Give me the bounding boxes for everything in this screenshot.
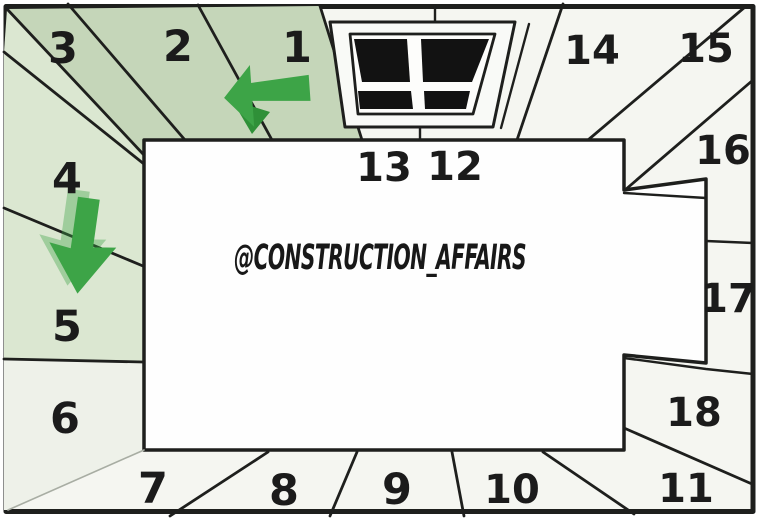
segment-label-1: 1 (282, 23, 312, 73)
segment-label-13: 13 (356, 145, 412, 191)
segment-label-12: 12 (427, 144, 483, 190)
segment-label-2: 2 (163, 22, 193, 72)
segment-label-4: 4 (52, 154, 82, 204)
segment-label-7: 7 (138, 464, 168, 514)
segment-label-10: 10 (484, 467, 540, 513)
segment-label-18: 18 (666, 390, 722, 436)
construction-sequence-diagram: 1 2 3 4 5 6 7 8 9 10 11 12 13 14 15 16 1… (0, 0, 760, 518)
segment-label-16: 16 (695, 128, 751, 174)
segment-label-5: 5 (52, 302, 82, 352)
segment-label-9: 9 (382, 465, 412, 515)
segment-label-11: 11 (658, 466, 714, 512)
window-pane-top-left (354, 39, 410, 82)
window-pane-bottom-right (424, 91, 470, 109)
window-pane-bottom-left (358, 91, 413, 109)
segment-label-8: 8 (269, 466, 299, 516)
segment-label-15: 15 (678, 26, 734, 72)
room-outline (144, 140, 706, 450)
segment-label-6: 6 (50, 394, 80, 444)
watermark: @CONSTRUCTION_AFFAIRS (234, 238, 526, 278)
segment-label-17: 17 (700, 276, 756, 322)
segment-label-3: 3 (48, 24, 78, 74)
segment-label-14: 14 (564, 28, 620, 74)
